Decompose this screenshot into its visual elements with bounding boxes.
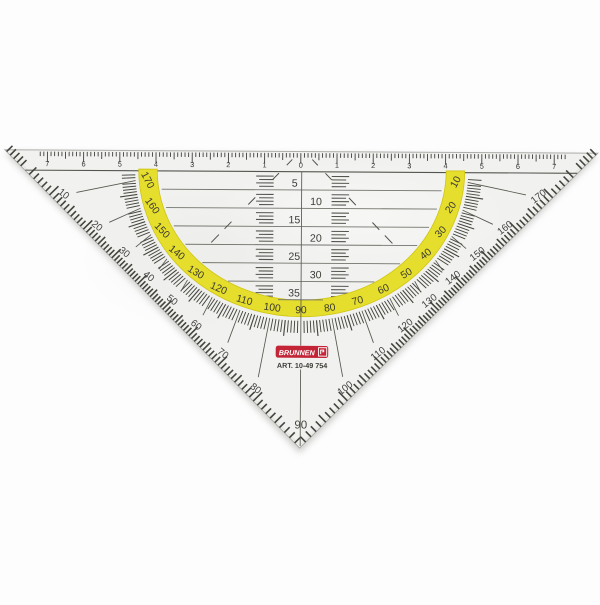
svg-text:6: 6 xyxy=(516,162,520,171)
svg-text:5: 5 xyxy=(118,160,122,169)
svg-text:7: 7 xyxy=(45,159,49,168)
svg-text:2: 2 xyxy=(226,160,230,169)
svg-text:7: 7 xyxy=(552,162,556,171)
svg-text:15: 15 xyxy=(289,214,301,226)
svg-text:90: 90 xyxy=(295,305,307,316)
svg-text:35: 35 xyxy=(288,287,300,299)
svg-text:4: 4 xyxy=(154,160,158,169)
svg-text:BRUNNEN: BRUNNEN xyxy=(279,348,316,357)
svg-text:6: 6 xyxy=(81,159,85,168)
svg-text:90: 90 xyxy=(294,419,307,431)
svg-text:2: 2 xyxy=(371,161,375,170)
svg-text:25: 25 xyxy=(288,251,300,263)
svg-text:4: 4 xyxy=(443,161,447,170)
svg-text:0: 0 xyxy=(299,161,303,170)
svg-text:80: 80 xyxy=(323,302,336,314)
svg-text:3: 3 xyxy=(407,161,411,170)
svg-text:5: 5 xyxy=(480,162,484,171)
svg-text:3: 3 xyxy=(190,160,194,169)
svg-text:5: 5 xyxy=(292,178,298,190)
svg-text:ART. 10-49 754: ART. 10-49 754 xyxy=(277,361,327,370)
svg-text:10: 10 xyxy=(310,196,322,208)
svg-text:20: 20 xyxy=(310,233,322,245)
svg-text:30: 30 xyxy=(310,269,322,281)
svg-text:1: 1 xyxy=(262,160,266,169)
svg-text:1: 1 xyxy=(335,161,339,170)
